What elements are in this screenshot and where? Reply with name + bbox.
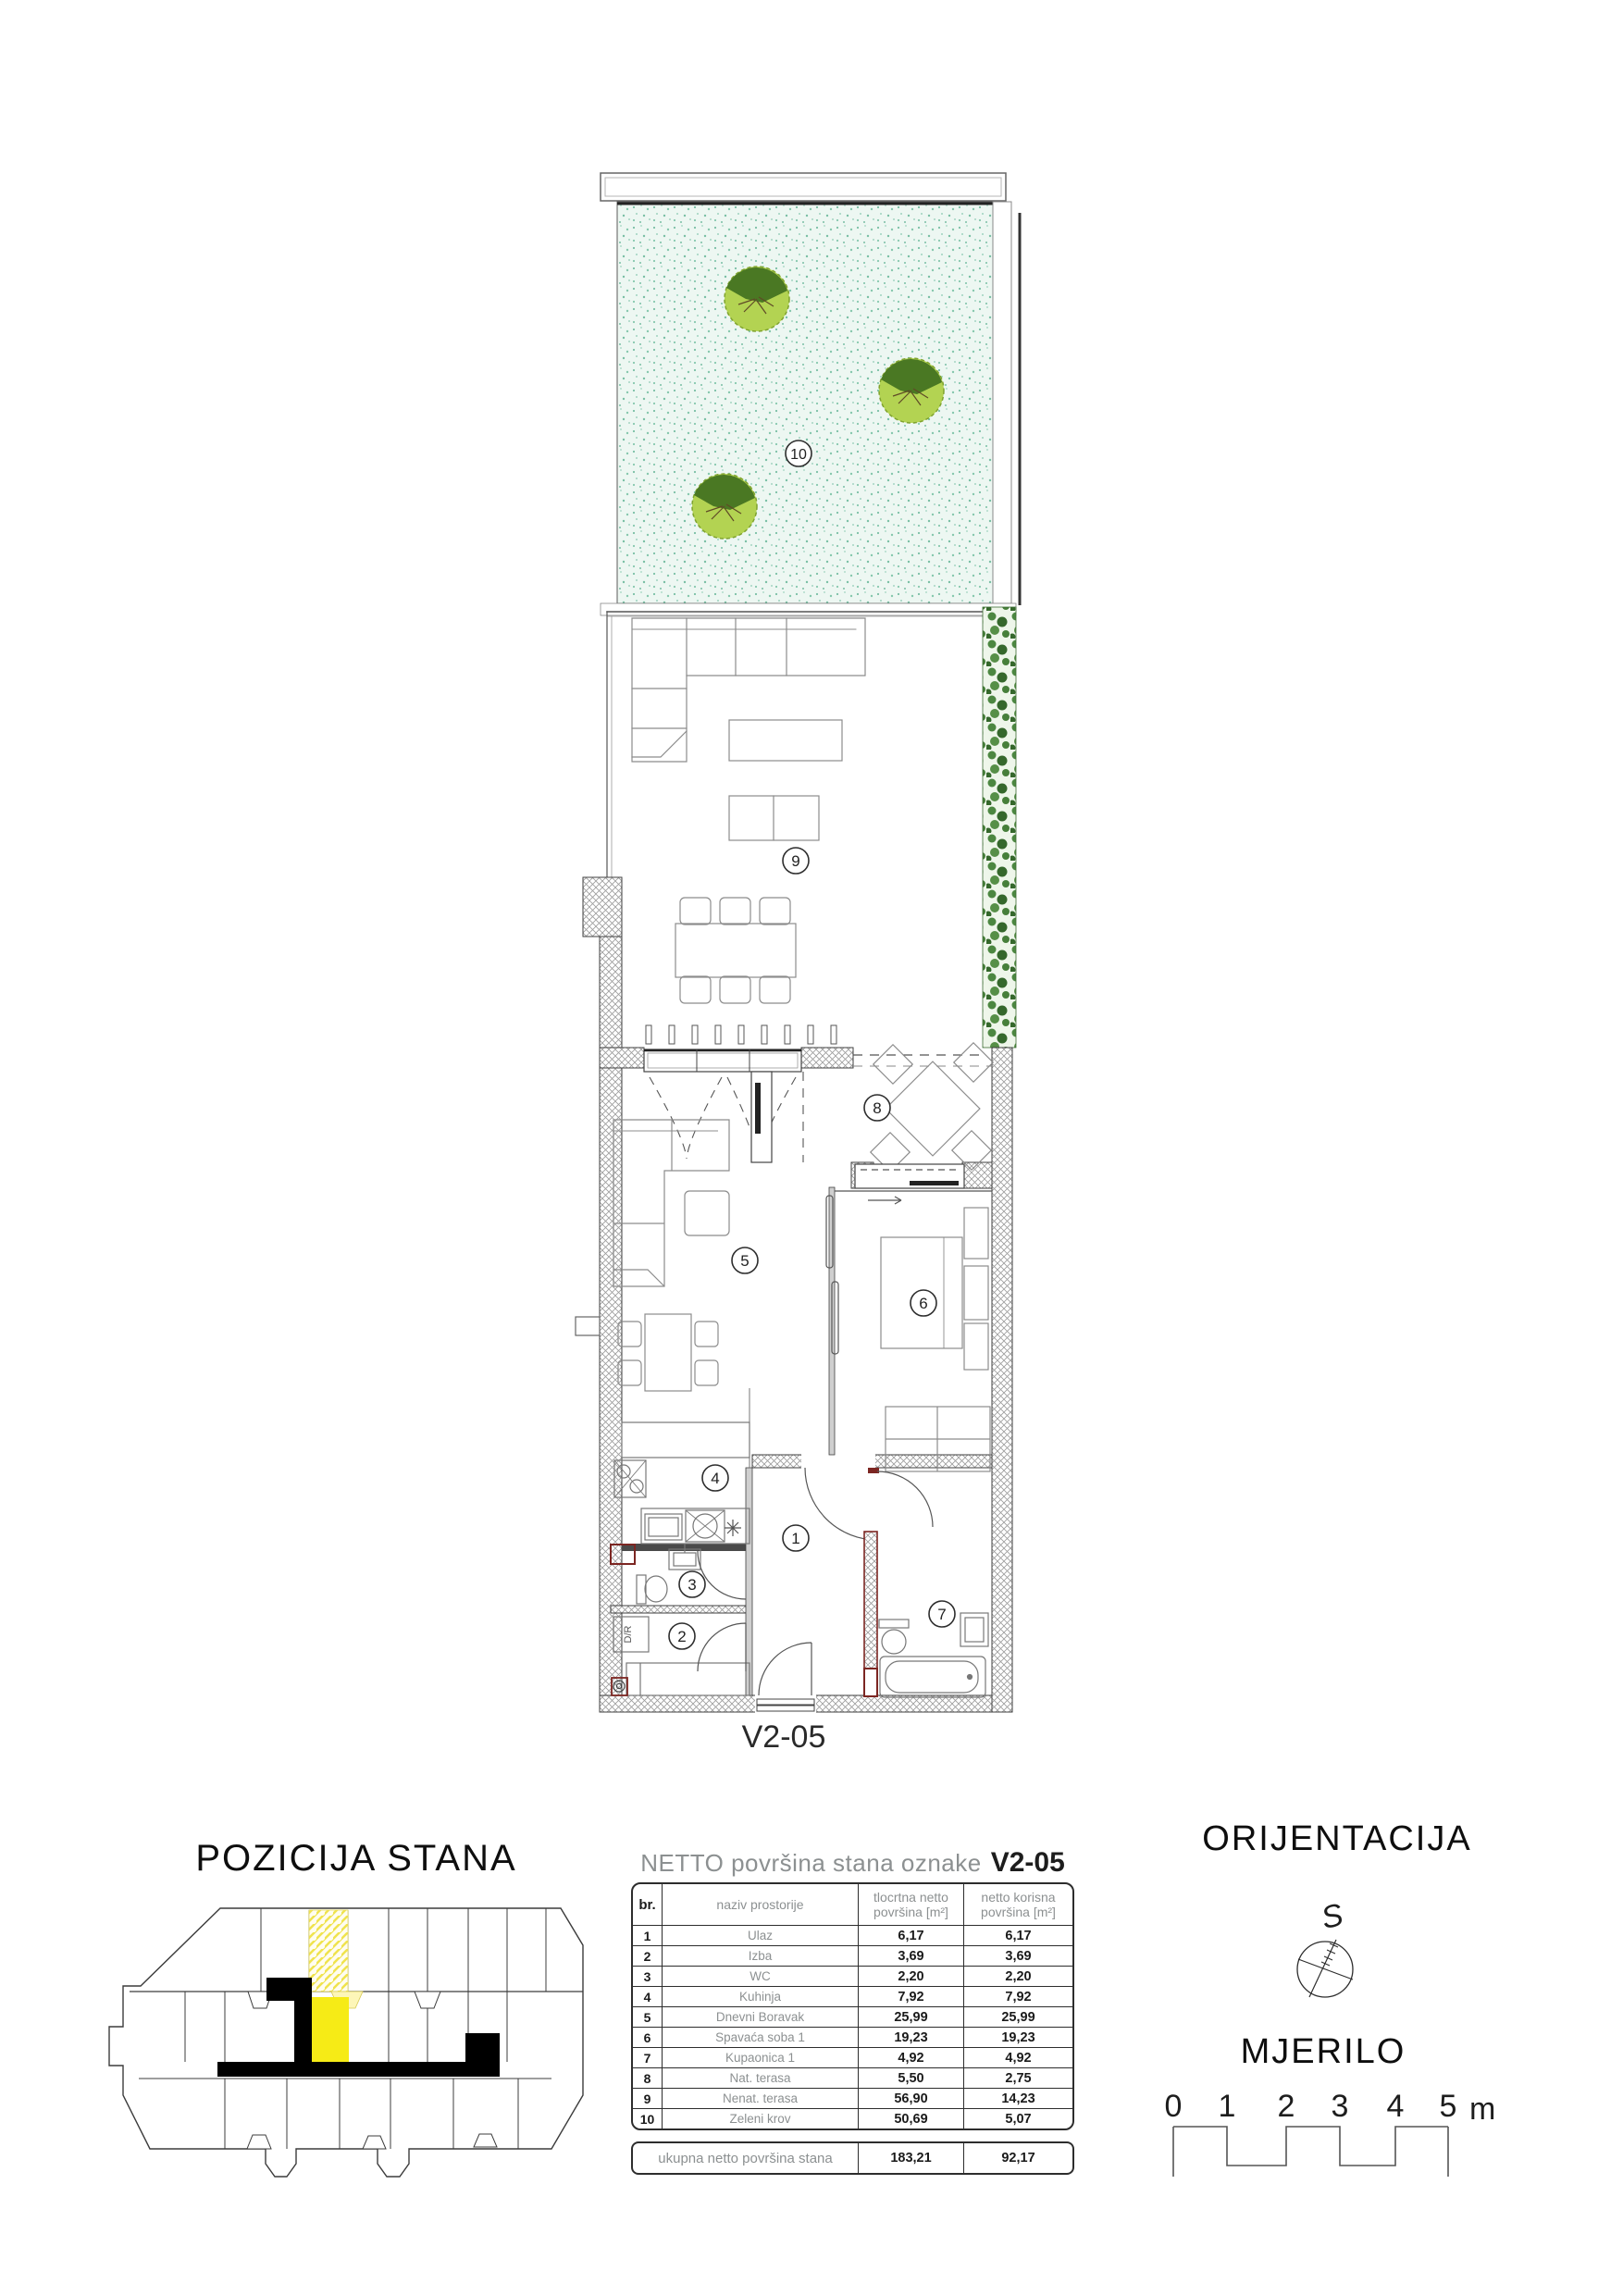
table-row: 9 Nenat. terasa 56,90 14,23 bbox=[633, 2088, 1072, 2108]
room-label-2: 2 bbox=[669, 1623, 695, 1649]
door-swing bbox=[698, 1623, 746, 1671]
table-title-prefix: NETTO površina stana oznake bbox=[640, 1849, 982, 1877]
scale-tick-label: 1 bbox=[1219, 2089, 1236, 2124]
svg-text:8: 8 bbox=[873, 1099, 881, 1117]
scale-tick-label: 5 bbox=[1440, 2089, 1457, 2124]
row-br: 5 bbox=[633, 2007, 662, 2027]
row-v2: 6,17 bbox=[963, 1926, 1072, 1945]
row-v2: 3,69 bbox=[963, 1946, 1072, 1966]
scale-bar: 0 1 2 3 4 5 m bbox=[1165, 2089, 1496, 2177]
row-v2: 5,07 bbox=[963, 2109, 1072, 2128]
terrace-sofa bbox=[632, 618, 865, 762]
row-br: 6 bbox=[633, 2028, 662, 2047]
tree-icon bbox=[725, 267, 789, 331]
green-roof-area: 10 bbox=[601, 173, 1020, 615]
row-br: 10 bbox=[633, 2109, 662, 2128]
hedge-strip bbox=[983, 607, 1016, 1048]
row-br: 3 bbox=[633, 1967, 662, 1986]
svg-text:4: 4 bbox=[711, 1470, 719, 1487]
row-v1: 6,17 bbox=[858, 1926, 963, 1945]
tree-icon bbox=[879, 358, 944, 423]
row-v2: 19,23 bbox=[963, 2028, 1072, 2047]
area-table: br. naziv prostorije tlocrtna netto povr… bbox=[631, 1882, 1074, 2130]
row-name: Kuhinja bbox=[662, 1987, 858, 2006]
deck-slats bbox=[646, 1025, 836, 1044]
row-name: Ulaz bbox=[662, 1926, 858, 1945]
row-name: Dnevni Boravak bbox=[662, 2007, 858, 2027]
row-v2: 2,75 bbox=[963, 2068, 1072, 2088]
room-4-kitchen bbox=[614, 1388, 750, 1544]
room-label-3: 3 bbox=[679, 1571, 705, 1597]
row-br: 9 bbox=[633, 2089, 662, 2108]
table-header-row: br. naziv prostorije tlocrtna netto povr… bbox=[633, 1884, 1072, 1925]
floor-plan-sheet: 10 bbox=[0, 0, 1623, 2296]
row-name: Spavaća soba 1 bbox=[662, 2028, 858, 2047]
terrace-dining-set bbox=[675, 898, 796, 1003]
row-br: 4 bbox=[633, 1987, 662, 2006]
red-wall-strip bbox=[864, 1532, 877, 1669]
sliding-door bbox=[751, 1072, 772, 1162]
terrace-area: 9 bbox=[607, 607, 1016, 1048]
mjerilo-title: MJERILO bbox=[1184, 2032, 1462, 2072]
pozicija-stana-title: POZICIJA STANA bbox=[139, 1838, 574, 1880]
row-v2: 25,99 bbox=[963, 2007, 1072, 2027]
row-br: 7 bbox=[633, 2048, 662, 2067]
row-v1: 50,69 bbox=[858, 2109, 963, 2128]
room-label-6: 6 bbox=[911, 1290, 936, 1316]
sink bbox=[686, 1510, 725, 1542]
room-label-4: 4 bbox=[702, 1465, 728, 1491]
scale-unit-label: m bbox=[1469, 2091, 1495, 2127]
svg-text:1: 1 bbox=[791, 1530, 799, 1547]
room-label-1: 1 bbox=[783, 1525, 809, 1551]
header-name: naziv prostorije bbox=[662, 1884, 858, 1925]
svg-text:5: 5 bbox=[740, 1252, 749, 1270]
row-v1: 25,99 bbox=[858, 2007, 963, 2027]
shelf bbox=[626, 1663, 750, 1695]
svg-text:9: 9 bbox=[791, 852, 799, 870]
toilet bbox=[637, 1575, 667, 1604]
wall-box bbox=[576, 1317, 600, 1335]
coffee-table bbox=[685, 1191, 729, 1235]
header-col1-line1: tlocrtna netto bbox=[873, 1890, 948, 1905]
south-label: S bbox=[1318, 1897, 1347, 1936]
row-br: 8 bbox=[633, 2068, 662, 2088]
room-label-7: 7 bbox=[929, 1601, 955, 1627]
header-col2-line2: površina [m²] bbox=[981, 1905, 1056, 1919]
table-total-row: ukupna netto površina stana 183,21 92,17 bbox=[631, 2141, 1074, 2175]
apartment-walls bbox=[583, 877, 1012, 1712]
svg-text:7: 7 bbox=[937, 1606, 946, 1623]
header-col1-line2: površina [m²] bbox=[873, 1905, 948, 1919]
terrace-table bbox=[729, 720, 842, 761]
svg-text:3: 3 bbox=[688, 1576, 696, 1594]
entry-door-swing bbox=[759, 1643, 811, 1695]
table-row: 1 Ulaz 6,17 6,17 bbox=[633, 1925, 1072, 1945]
row-v2: 4,92 bbox=[963, 2048, 1072, 2067]
dining-set bbox=[618, 1314, 718, 1391]
table-row: 10 Zeleni krov 50,69 5,07 bbox=[633, 2108, 1072, 2128]
room-label-5: 5 bbox=[732, 1247, 758, 1273]
door-swing bbox=[805, 1468, 877, 1540]
header-col2-line1: netto korisna bbox=[981, 1890, 1055, 1905]
row-v1: 2,20 bbox=[858, 1967, 963, 1986]
door-swing bbox=[698, 1551, 746, 1599]
table-title: NETTO površina stana oznakeV2-05 bbox=[631, 1847, 1074, 1879]
oven bbox=[645, 1514, 682, 1540]
header-br: br. bbox=[633, 1884, 662, 1925]
table-row: 4 Kuhinja 7,92 7,92 bbox=[633, 1986, 1072, 2006]
room-label-9: 9 bbox=[783, 848, 809, 874]
unit-hatched-extension bbox=[309, 1910, 348, 1992]
highlighted-unit bbox=[312, 1997, 349, 2062]
total-v2: 92,17 bbox=[963, 2143, 1072, 2173]
row-br: 2 bbox=[633, 1946, 662, 1966]
row-v2: 14,23 bbox=[963, 2089, 1072, 2108]
living-room-window bbox=[644, 1049, 801, 1159]
row-v1: 19,23 bbox=[858, 2028, 963, 2047]
row-name: Nat. terasa bbox=[662, 2068, 858, 2088]
table-title-unit: V2-05 bbox=[991, 1847, 1065, 1878]
total-v1: 183,21 bbox=[858, 2143, 963, 2173]
row-v2: 7,92 bbox=[963, 1987, 1072, 2006]
svg-text:2: 2 bbox=[677, 1628, 686, 1645]
room-1-entry bbox=[755, 1468, 877, 1714]
table-row: 3 WC 2,20 2,20 bbox=[633, 1966, 1072, 1986]
building-position-diagram bbox=[109, 1908, 583, 2177]
room-label-8: 8 bbox=[864, 1095, 890, 1121]
row-name: Nenat. terasa bbox=[662, 2089, 858, 2108]
bedroom-window bbox=[855, 1164, 964, 1204]
row-name: WC bbox=[662, 1967, 858, 1986]
compass: S bbox=[1297, 1897, 1353, 1997]
appliance-label: D/R bbox=[623, 1625, 634, 1643]
row-v1: 56,90 bbox=[858, 2089, 963, 2108]
tree-icon bbox=[692, 474, 757, 539]
table-row: 8 Nat. terasa 5,50 2,75 bbox=[633, 2067, 1072, 2088]
table-row: 6 Spavaća soba 1 19,23 19,23 bbox=[633, 2027, 1072, 2047]
freezer-symbol-icon bbox=[725, 1520, 741, 1536]
table-row: 5 Dnevni Boravak 25,99 25,99 bbox=[633, 2006, 1072, 2027]
plan-unit-label: V2-05 bbox=[742, 1719, 826, 1755]
orijentacija-title: ORIJENTACIJA bbox=[1184, 1819, 1490, 1859]
room-7-bathroom bbox=[864, 1468, 988, 1697]
row-v2: 2,20 bbox=[963, 1967, 1072, 1986]
scale-tick-label: 0 bbox=[1165, 2089, 1183, 2124]
table-row: 2 Izba 3,69 3,69 bbox=[633, 1945, 1072, 1966]
row-br: 1 bbox=[633, 1926, 662, 1945]
total-label: ukupna netto površina stana bbox=[633, 2143, 858, 2173]
row-v1: 7,92 bbox=[858, 1987, 963, 2006]
table-row: 7 Kupaonica 1 4,92 4,92 bbox=[633, 2047, 1072, 2067]
row-name: Kupaonica 1 bbox=[662, 2048, 858, 2067]
svg-text:10: 10 bbox=[790, 447, 807, 463]
row-name: Zeleni krov bbox=[662, 2109, 858, 2128]
scale-tick-label: 2 bbox=[1278, 2089, 1295, 2124]
door-swing bbox=[877, 1471, 933, 1527]
row-v1: 3,69 bbox=[858, 1946, 963, 1966]
row-name: Izba bbox=[662, 1946, 858, 1966]
room-label-10: 10 bbox=[786, 441, 811, 466]
terrace-lounger bbox=[729, 796, 819, 840]
scale-tick-label: 3 bbox=[1332, 2089, 1349, 2124]
scale-tick-label: 4 bbox=[1387, 2089, 1405, 2124]
bathtub bbox=[880, 1657, 985, 1697]
row-v1: 4,92 bbox=[858, 2048, 963, 2067]
svg-text:6: 6 bbox=[919, 1295, 927, 1312]
header-col1: tlocrtna netto površina [m²] bbox=[858, 1884, 963, 1925]
toilet bbox=[879, 1620, 909, 1654]
row-v1: 5,50 bbox=[858, 2068, 963, 2088]
header-col2: netto korisna površina [m²] bbox=[963, 1884, 1072, 1925]
room-3-wc bbox=[611, 1544, 746, 1604]
room-6-bedroom bbox=[881, 1208, 990, 1471]
